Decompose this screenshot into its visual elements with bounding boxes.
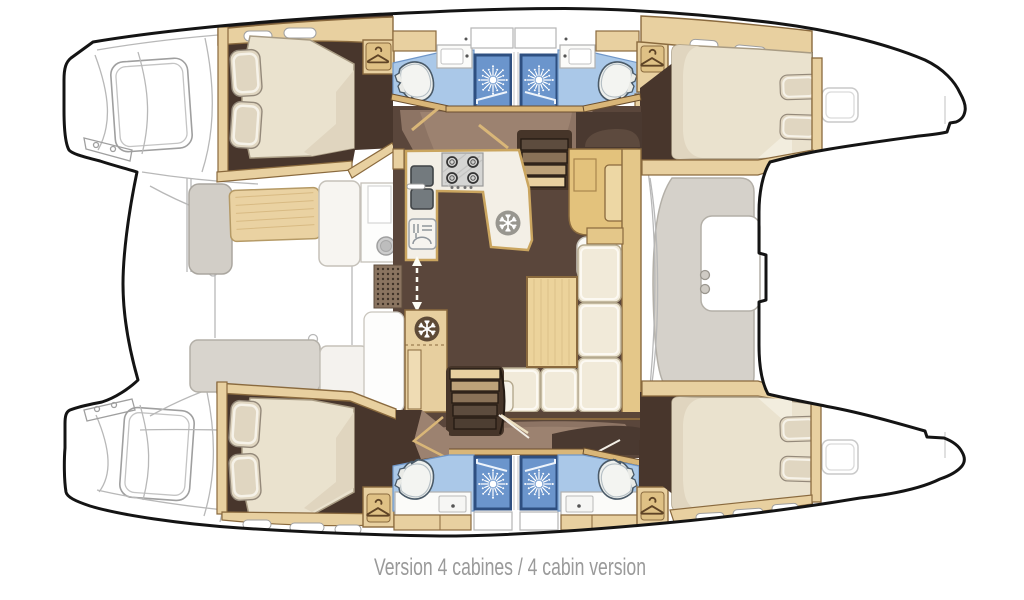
svg-text:Version 4 cabines / 4 cabin ve: Version 4 cabines / 4 cabin version (374, 554, 646, 581)
